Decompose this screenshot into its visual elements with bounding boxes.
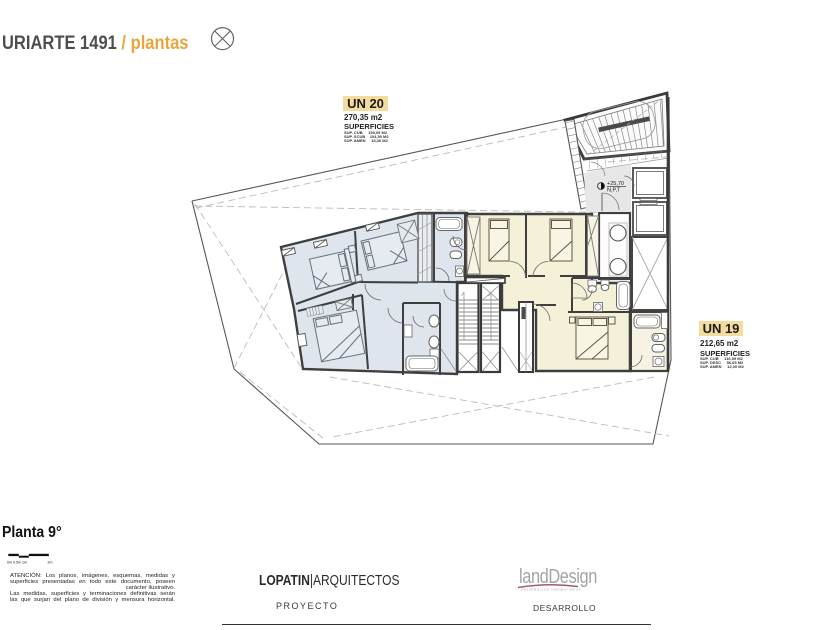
svg-text:DESARROLLOS INMOBILIARIOS: DESARROLLOS INMOBILIARIOS bbox=[521, 588, 581, 592]
svg-text:2m: 2m bbox=[48, 561, 53, 565]
svg-text:N,P,T: N,P,T bbox=[607, 188, 621, 194]
svg-text:0m 0.5m 1m: 0m 0.5m 1m bbox=[7, 561, 27, 565]
